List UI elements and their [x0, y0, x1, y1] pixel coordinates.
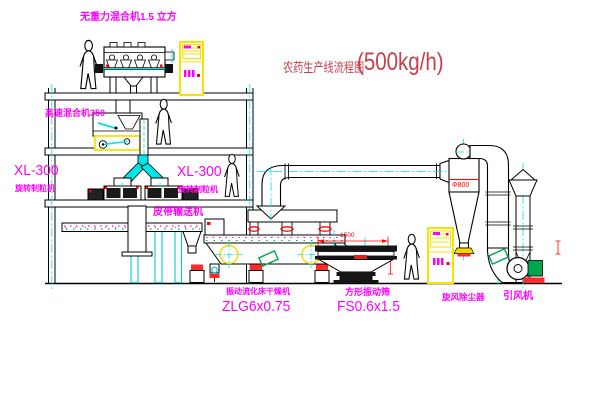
floor-slab — [45, 93, 253, 100]
control-cabinet — [428, 228, 453, 283]
page-title-capacity: (500kg/h) — [357, 48, 444, 77]
fan-motor — [528, 261, 543, 277]
label-granulator-left: 旋转制粒机 — [15, 185, 55, 193]
label-sieve-model: FS0.6x1.5 — [337, 299, 400, 314]
label-cyclone: 旋风除尘器 — [442, 293, 485, 302]
label-dryer-model: ZLG6x0.75 — [222, 299, 290, 314]
label-gravity-free-mixer: 无重力混合机1.5 立方 — [80, 13, 177, 23]
person-figure — [225, 154, 240, 196]
label-high-speed-mixer: 高速混合机350 — [45, 109, 105, 118]
gravity-free-mixer-drawing — [95, 43, 174, 94]
rotary-granulator-left-drawing — [88, 178, 141, 200]
person-figure — [404, 234, 420, 279]
chimney-dimension — [556, 241, 561, 254]
dimension-sieve-length: 1500 — [340, 233, 354, 240]
floor-slab — [45, 148, 253, 155]
label-dryer: 振动流化床干燥机 — [226, 288, 290, 296]
dimension-cyclone-diameter: Φ800 — [452, 182, 469, 189]
label-xl300-left: XL-300 — [14, 163, 59, 178]
label-fan: 引风机 — [503, 292, 533, 302]
person-figure — [156, 99, 172, 144]
label-sieve: 方形振动筛 — [345, 288, 390, 297]
label-belt-conveyor: 皮带输送机 — [153, 208, 203, 218]
label-xl300-right: XL-300 — [177, 164, 222, 179]
fan-base — [524, 278, 545, 284]
floor-slab — [45, 200, 253, 207]
label-granulator-right: 旋转制粒机 — [178, 186, 218, 194]
person-figure — [80, 40, 97, 88]
page-title: 农药生产线流程图 — [283, 57, 364, 76]
process-flow-diagram: 农药生产线流程图 (500kg/h) 无重力混合机1.5 立方 高速混合机350… — [0, 0, 600, 403]
control-cabinet — [180, 42, 203, 95]
